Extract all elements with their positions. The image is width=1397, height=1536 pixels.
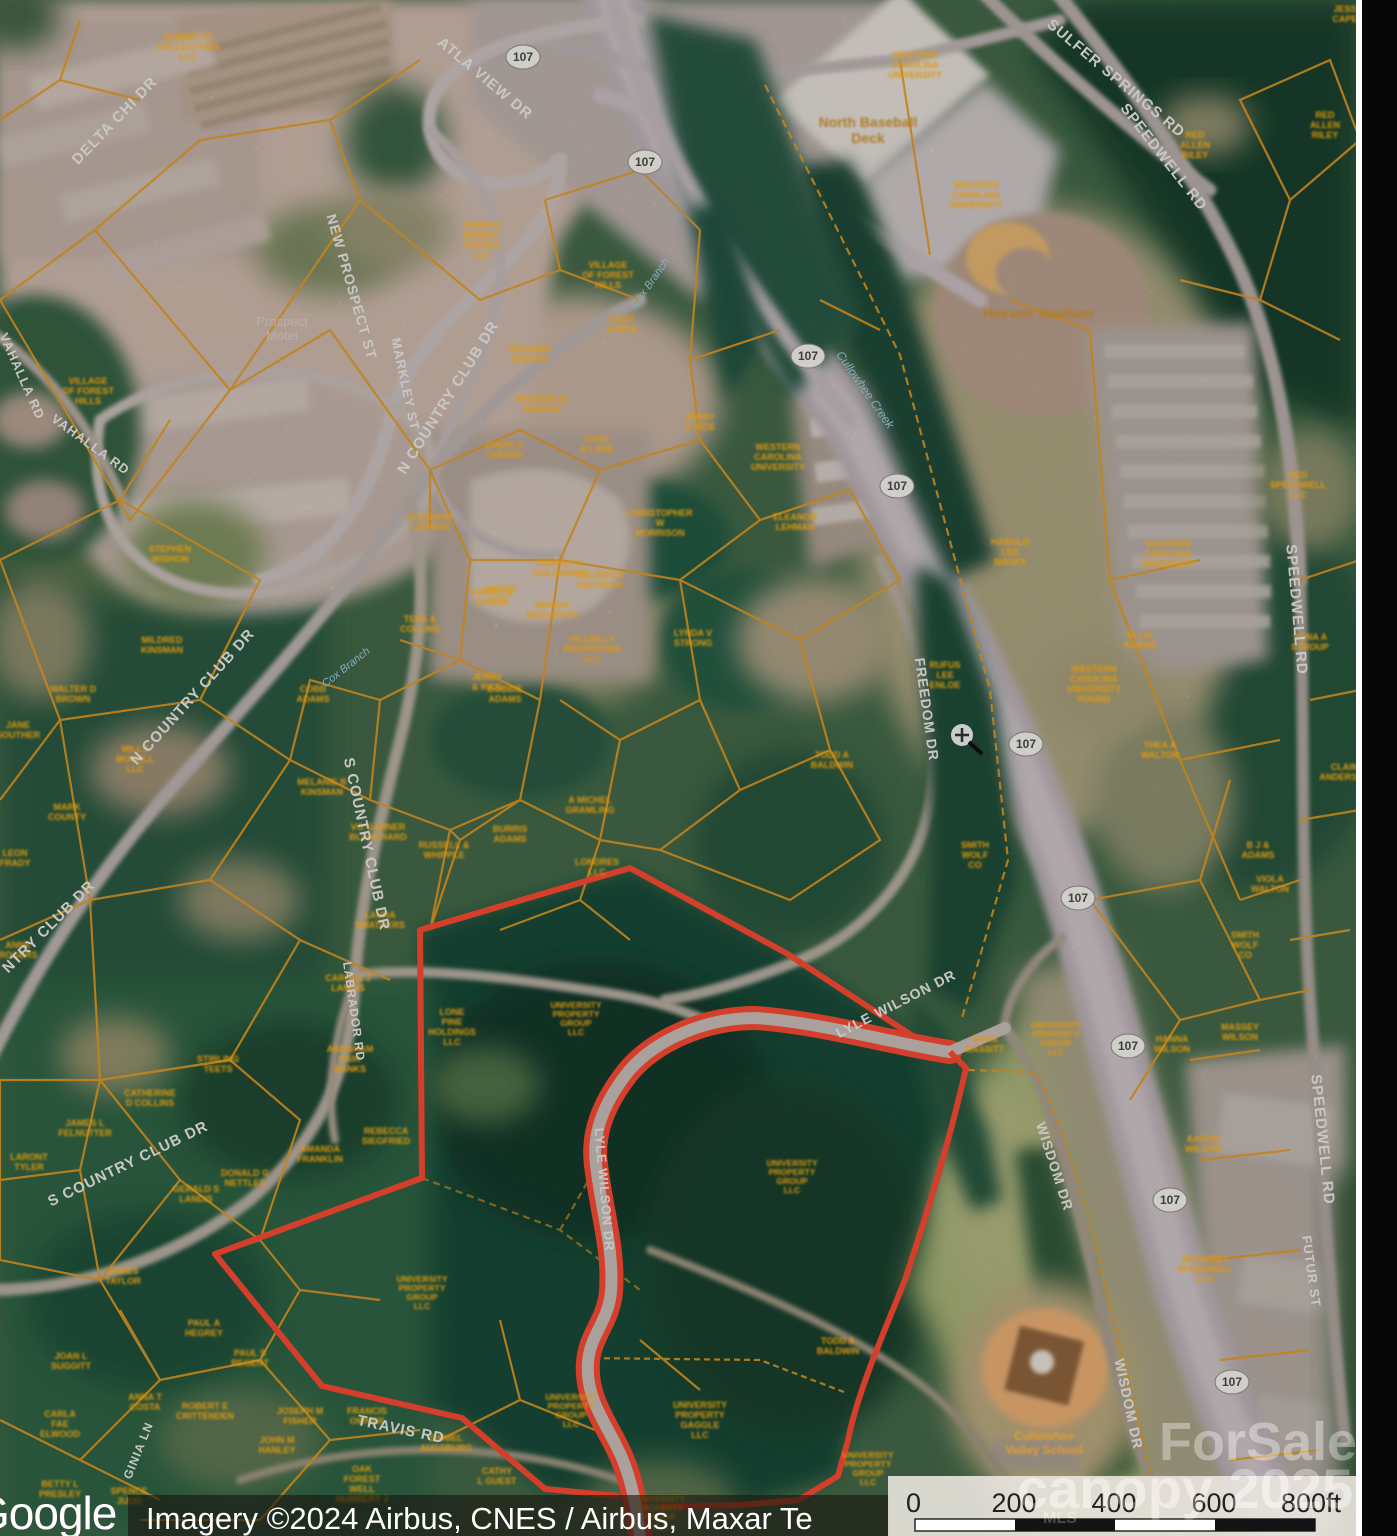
svg-text:Imagery ©2024 Airbus, CNES / A: Imagery ©2024 Airbus, CNES / Airbus, Max… [146, 1501, 813, 1536]
svg-text:CullowheeValley School: CullowheeValley School [1005, 1429, 1082, 1457]
svg-text:MLS: MLS [1043, 1510, 1077, 1527]
svg-text:Google: Google [0, 1487, 116, 1536]
svg-text:0: 0 [906, 1488, 921, 1518]
